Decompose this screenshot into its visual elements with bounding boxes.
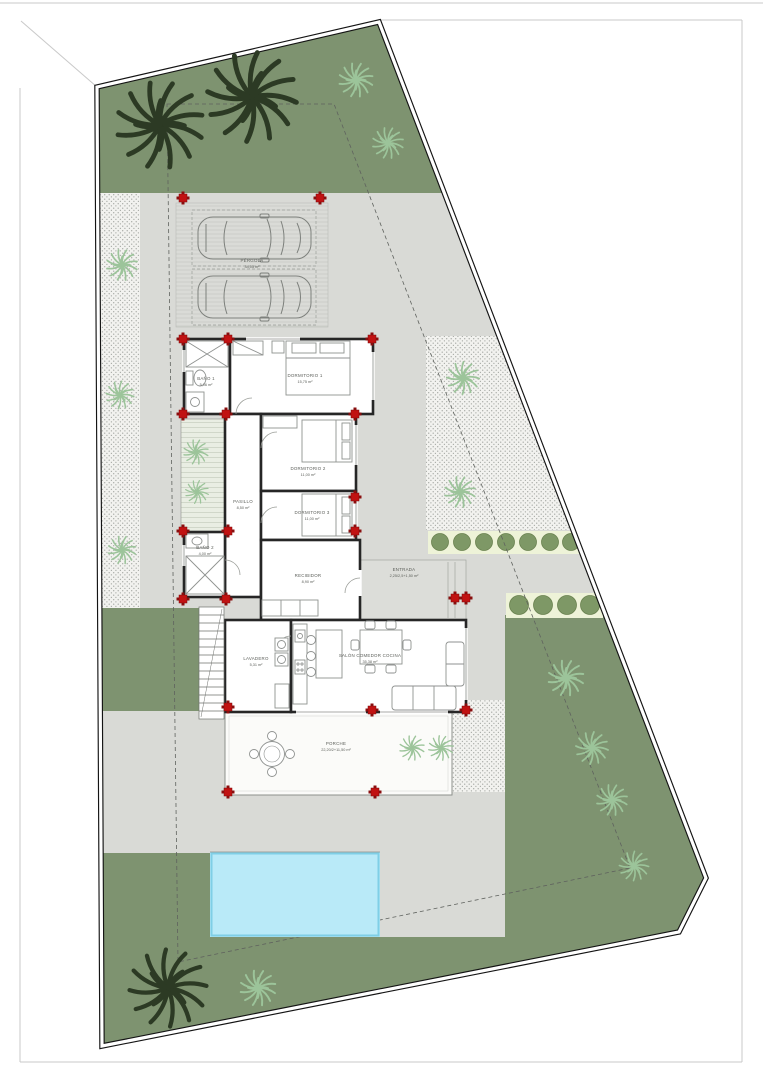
label-pergola: PÉRGOLA (241, 258, 264, 263)
label-entrada-area: 2,25/2,5+1,50 m² (390, 574, 420, 578)
site-plan-svg: PÉRGOLA 34,05 m² BAÑO 1 5,06 m² DORMITOR… (0, 0, 763, 1080)
gravel-porch-side (452, 700, 510, 792)
label-dormitorio2: DORMITORIO 2 (290, 466, 325, 471)
patio-deck (181, 419, 225, 532)
label-dormitorio3: DORMITORIO 3 (294, 510, 329, 515)
bed-dormitorio2 (302, 420, 352, 462)
label-pergola-area: 34,05 m² (245, 265, 261, 269)
lawn-bottom-left (97, 853, 210, 1053)
floor-plan-sheet: PÉRGOLA 34,05 m² BAÑO 1 5,06 m² DORMITOR… (0, 0, 763, 1080)
label-banio1: BAÑO 1 (197, 376, 215, 381)
label-pasillo-area: 8,50 m² (237, 506, 251, 510)
bed-dormitorio3 (302, 494, 352, 536)
label-dormitorio1-area: 15,75 m² (298, 380, 314, 384)
label-banio2: BAÑO 2 (196, 545, 214, 550)
label-entrada: ENTRADA (393, 567, 416, 572)
lawn-right (505, 615, 735, 945)
label-lavadero: LAVADERO (243, 656, 269, 661)
label-dormitorio3-area: 11,00 m² (305, 517, 320, 521)
label-dormitorio1: DORMITORIO 1 (287, 373, 322, 378)
label-pasillo: PASILLO (233, 499, 253, 504)
recibidor-bench (262, 600, 318, 616)
label-porche: PORCHE (326, 741, 346, 746)
label-banio1-area: 5,06 m² (200, 383, 214, 387)
label-lavadero-area: 5,31 m² (250, 663, 264, 667)
label-recibidor-area: 8,90 m² (302, 580, 316, 584)
label-porche-area: 22,20/2+11,50 m² (321, 748, 351, 752)
lawn-bottom (210, 937, 710, 1053)
exterior-stairs (199, 607, 224, 719)
label-banio2-area: 4,00 m² (199, 552, 213, 556)
label-dormitorio2-area: 11,00 m² (301, 473, 316, 477)
label-recibidor: RECIBIDOR (295, 573, 322, 578)
wardrobe-dormitorio2 (263, 416, 297, 428)
label-salon: SALÓN COMEDOR COCINA (339, 653, 401, 658)
swimming-pool (210, 852, 380, 937)
gravel-upper-right (426, 336, 573, 530)
lawn-left-block (97, 608, 200, 711)
label-salon-area: 35,38 m² (363, 660, 379, 664)
